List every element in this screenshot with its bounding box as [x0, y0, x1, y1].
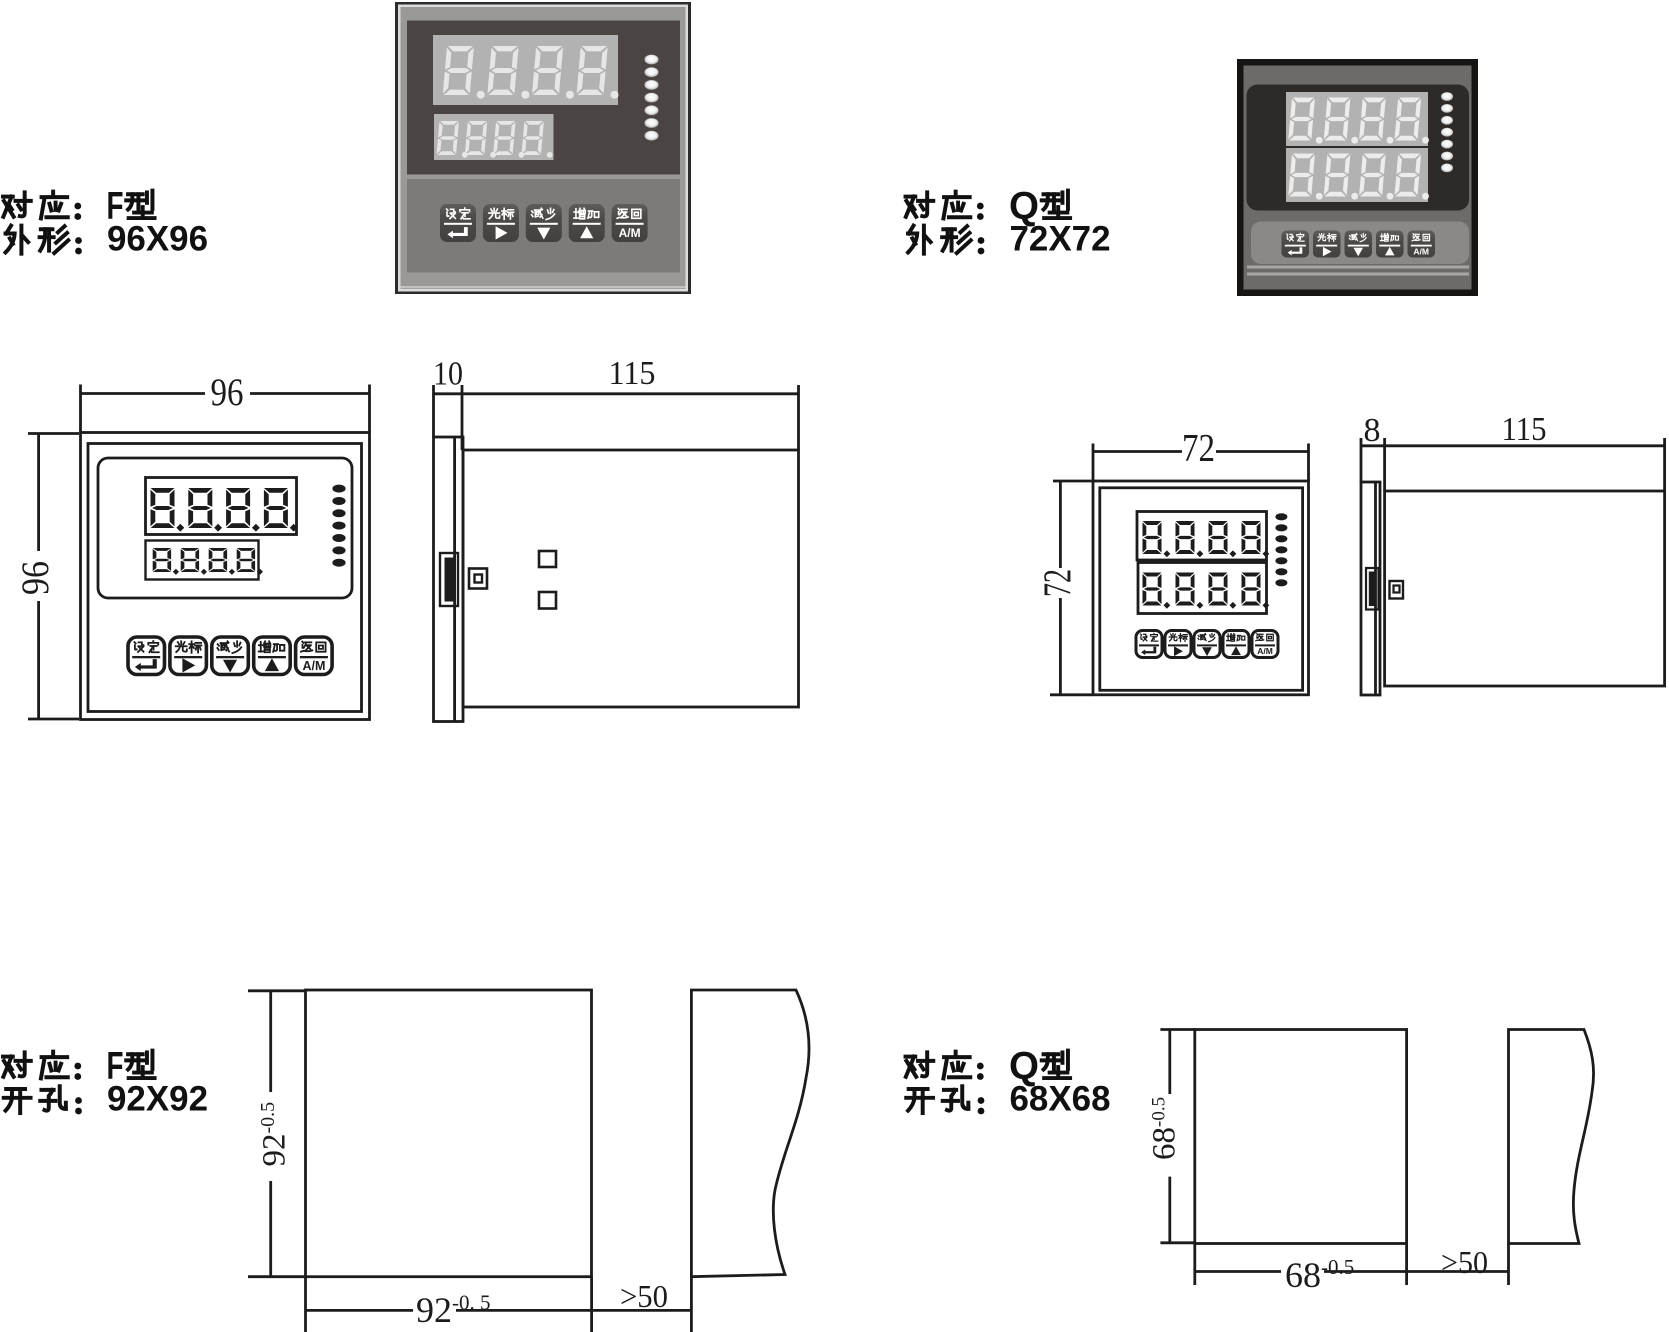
- svg-text:96X96: 96X96: [107, 219, 208, 258]
- svg-text:96: 96: [211, 371, 244, 414]
- svg-text:115: 115: [609, 355, 656, 392]
- svg-text:8: 8: [1364, 412, 1381, 449]
- svg-text:A/M: A/M: [302, 659, 325, 673]
- svg-text:A/M: A/M: [619, 226, 641, 240]
- svg-text:A/M: A/M: [1257, 646, 1273, 656]
- svg-text:72X72: 72X72: [1010, 219, 1111, 258]
- svg-text:10: 10: [433, 356, 463, 393]
- svg-text:A/M: A/M: [1413, 247, 1429, 257]
- svg-text:92X92: 92X92: [107, 1079, 208, 1118]
- svg-text:96: 96: [14, 561, 57, 595]
- svg-text:72: 72: [1036, 569, 1079, 597]
- svg-text:>50: >50: [1441, 1244, 1488, 1280]
- svg-text:68X68: 68X68: [1010, 1079, 1111, 1118]
- svg-text:>50: >50: [620, 1278, 668, 1314]
- svg-text:72: 72: [1182, 427, 1215, 470]
- svg-text:115: 115: [1502, 411, 1547, 448]
